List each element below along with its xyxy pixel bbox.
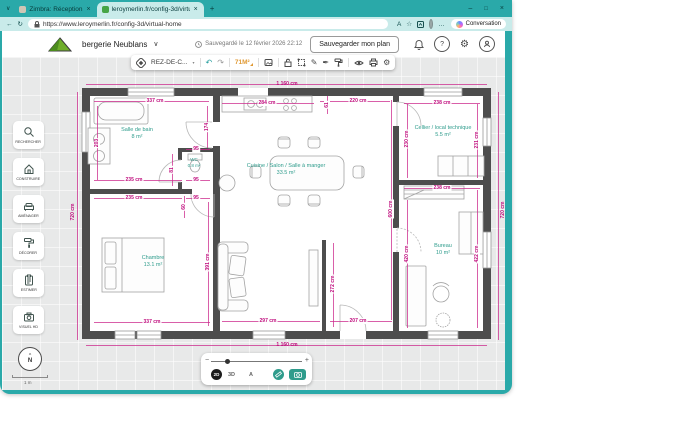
zoom-slider-handle[interactable]: [225, 359, 230, 364]
plan-toolbar: REZ-DE-C... ▾ ↶ ↷ 71M² ✎ ✒: [131, 55, 395, 70]
mode-2d-button[interactable]: 2D: [211, 369, 222, 380]
compass-letter: N: [28, 358, 32, 364]
dimension-line: [86, 345, 487, 346]
browser-window: ∨ Zimbra: Réception × leroymerlin.fr/con…: [0, 0, 512, 394]
area-measure-icon[interactable]: [297, 58, 306, 67]
floor-selector-chevron[interactable]: ▾: [192, 60, 194, 65]
print-icon[interactable]: [369, 58, 378, 67]
compass-north-button[interactable]: ^ N: [18, 347, 42, 371]
clipboard-icon: [23, 274, 35, 286]
sidebar-item-estimer[interactable]: ESTIMER: [13, 269, 44, 297]
measure-button[interactable]: [273, 369, 284, 380]
scale-label: 1 m: [24, 380, 32, 385]
furniture-layer: [78, 78, 498, 344]
camera-icon: [294, 371, 302, 378]
floor-selector-icon[interactable]: [136, 58, 146, 68]
floor-selector-label[interactable]: REZ-DE-C...: [151, 59, 187, 66]
ruler-icon: [275, 371, 282, 378]
redo-icon[interactable]: ↷: [217, 59, 224, 67]
screenshot-button[interactable]: [289, 369, 306, 380]
house-icon: [23, 163, 35, 175]
scale-bar: [12, 377, 48, 378]
area-badge[interactable]: 71M²: [235, 59, 253, 66]
sofa-icon: [23, 200, 35, 212]
snapshot-icon[interactable]: [264, 58, 273, 67]
sidebar-item-decorer[interactable]: DÉCORER: [13, 232, 44, 260]
zoom-slider[interactable]: [211, 361, 302, 362]
sidebar-item-visuel-hd[interactable]: VISUEL HD: [13, 306, 44, 334]
visibility-eye-icon[interactable]: [354, 59, 364, 67]
pipette-icon[interactable]: ✒: [322, 59, 329, 67]
sidebar-item-rechercher[interactable]: RECHERCHER: [13, 121, 44, 149]
labels-toggle-button[interactable]: A: [249, 372, 253, 378]
search-icon: [23, 126, 35, 138]
dimension-label: 720 cm: [500, 201, 506, 220]
pencil-icon[interactable]: ✎: [311, 59, 318, 67]
dimension-line: [498, 92, 499, 340]
view-controls-panel: − + 2D 3D A: [201, 353, 312, 385]
camera-icon: [23, 311, 35, 323]
toolbar-settings-icon[interactable]: ⚙: [383, 59, 390, 67]
sidebar-item-amenager[interactable]: AMÉNAGER: [13, 195, 44, 223]
lock-icon[interactable]: [284, 58, 292, 67]
mode-3d-button[interactable]: 3D: [228, 372, 235, 378]
undo-icon[interactable]: ↶: [206, 59, 213, 67]
paint-roller-icon[interactable]: [334, 58, 343, 67]
paint-roller-icon: [23, 237, 35, 249]
zoom-out-icon[interactable]: −: [205, 357, 209, 364]
sidebar-item-construire[interactable]: CONSTRUIRE: [13, 158, 44, 186]
zoom-in-icon[interactable]: +: [305, 357, 309, 364]
dimension-label: 720 cm: [70, 203, 76, 222]
